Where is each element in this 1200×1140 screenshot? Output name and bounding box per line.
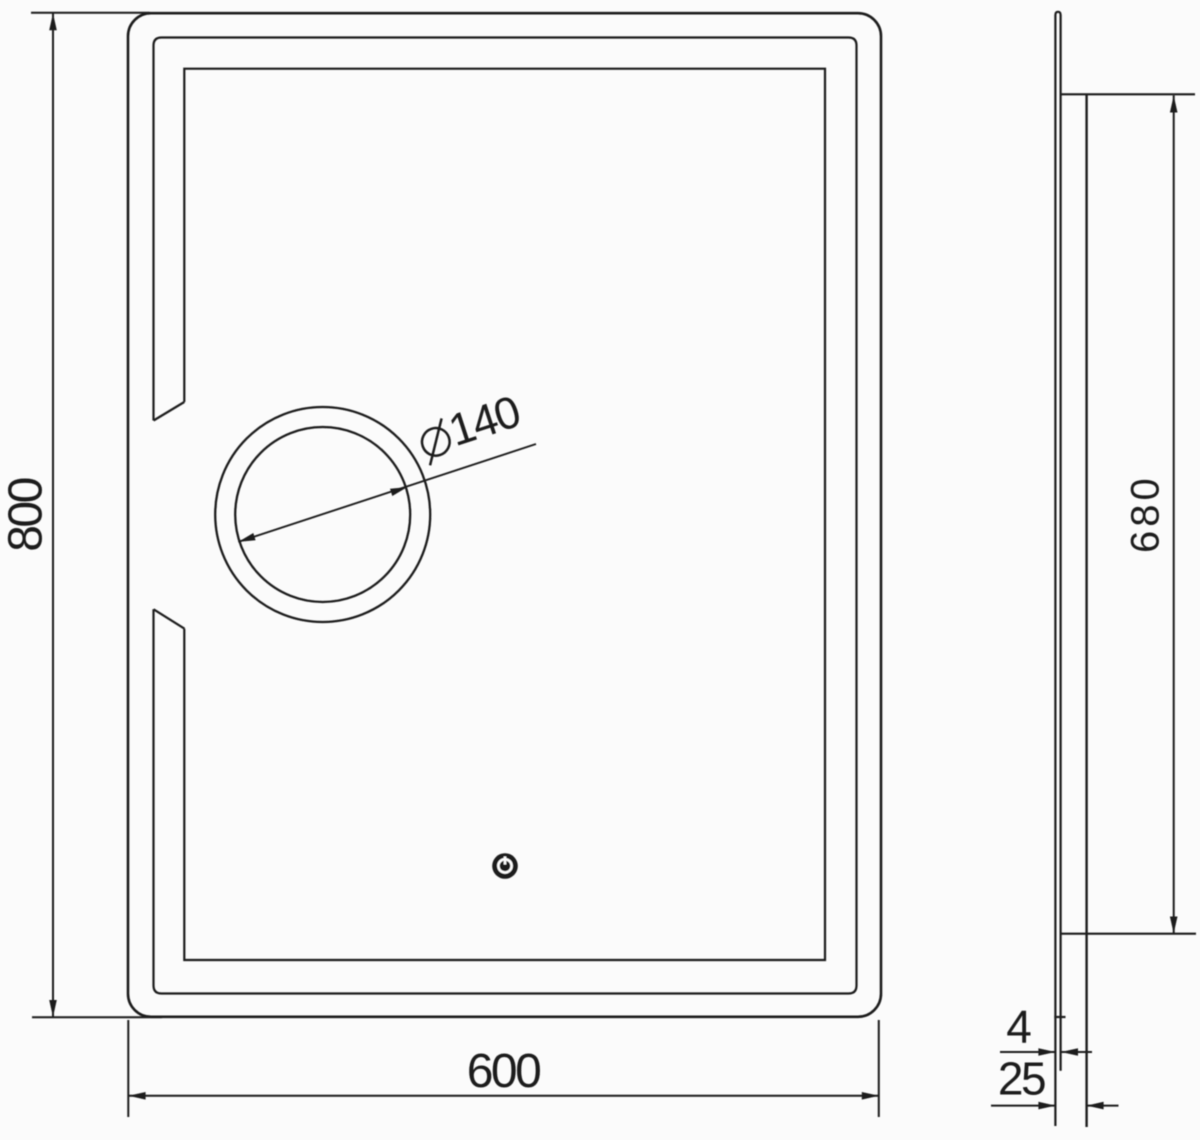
svg-text:4: 4 bbox=[1006, 1001, 1032, 1053]
svg-text:600: 600 bbox=[467, 1045, 540, 1098]
svg-text:680: 680 bbox=[1124, 474, 1168, 553]
svg-text:25: 25 bbox=[998, 1053, 1045, 1105]
svg-text:800: 800 bbox=[0, 478, 53, 551]
